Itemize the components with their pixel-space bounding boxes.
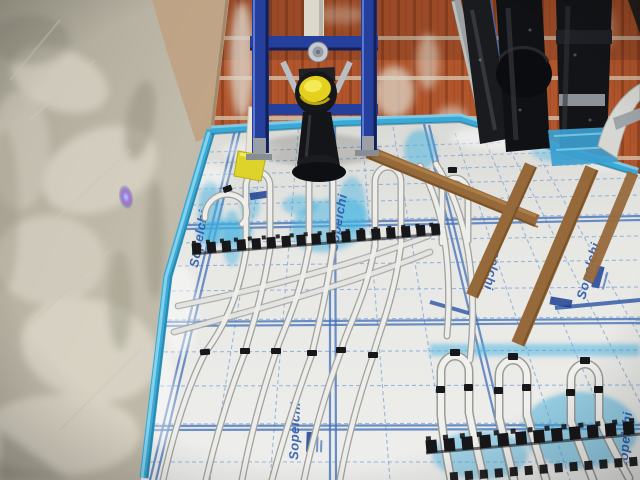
photo-vignette: [0, 0, 640, 480]
construction-photo: Sopelchi Sopelchi Sopelchi Sopelchi Sope…: [0, 0, 640, 480]
photo-canvas: Sopelchi Sopelchi Sopelchi Sopelchi Sope…: [0, 0, 640, 480]
